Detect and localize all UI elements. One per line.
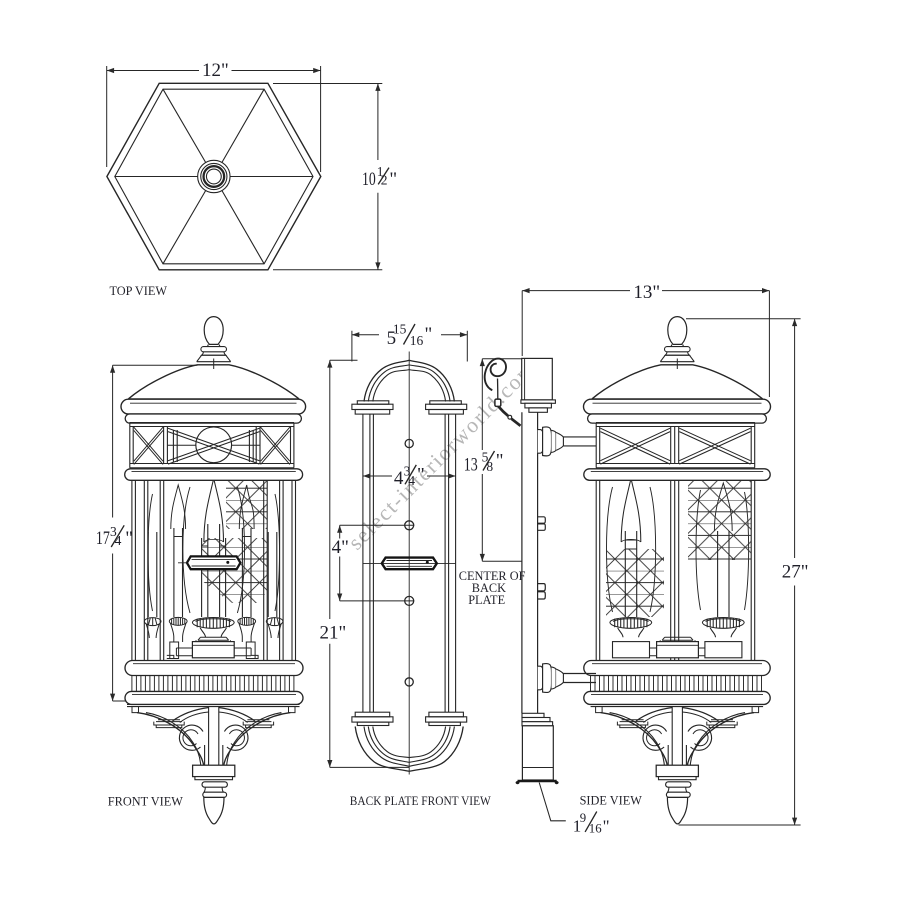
svg-text:4: 4 bbox=[408, 473, 415, 488]
svg-text:SIDE VIEW: SIDE VIEW bbox=[580, 794, 643, 808]
svg-text:16: 16 bbox=[410, 333, 424, 348]
svg-text:27": 27" bbox=[782, 562, 809, 583]
svg-text:15: 15 bbox=[393, 321, 407, 336]
svg-text:16: 16 bbox=[589, 821, 602, 835]
svg-text:": " bbox=[603, 817, 610, 836]
svg-text:21": 21" bbox=[320, 623, 347, 644]
svg-text:12": 12" bbox=[202, 60, 229, 81]
svg-text:": " bbox=[425, 324, 433, 345]
svg-text:2: 2 bbox=[381, 173, 388, 188]
svg-text:17: 17 bbox=[96, 528, 110, 549]
svg-text:": " bbox=[496, 451, 504, 472]
svg-text:": " bbox=[417, 464, 425, 485]
svg-text:10: 10 bbox=[362, 169, 376, 190]
svg-text:": " bbox=[125, 528, 133, 549]
svg-text:4: 4 bbox=[394, 468, 404, 489]
svg-text:4": 4" bbox=[332, 537, 349, 558]
svg-text:13: 13 bbox=[464, 454, 478, 475]
svg-text:13": 13" bbox=[633, 282, 660, 303]
svg-text:TOP VIEW: TOP VIEW bbox=[110, 284, 168, 298]
svg-text:BACK PLATE FRONT VIEW: BACK PLATE FRONT VIEW bbox=[350, 794, 491, 808]
svg-text:PLATE: PLATE bbox=[468, 593, 505, 607]
svg-text:8: 8 bbox=[486, 459, 493, 474]
svg-text:9: 9 bbox=[580, 811, 586, 825]
svg-text:": " bbox=[389, 169, 397, 190]
svg-text:FRONT VIEW: FRONT VIEW bbox=[108, 794, 183, 808]
svg-text:4: 4 bbox=[115, 533, 122, 548]
